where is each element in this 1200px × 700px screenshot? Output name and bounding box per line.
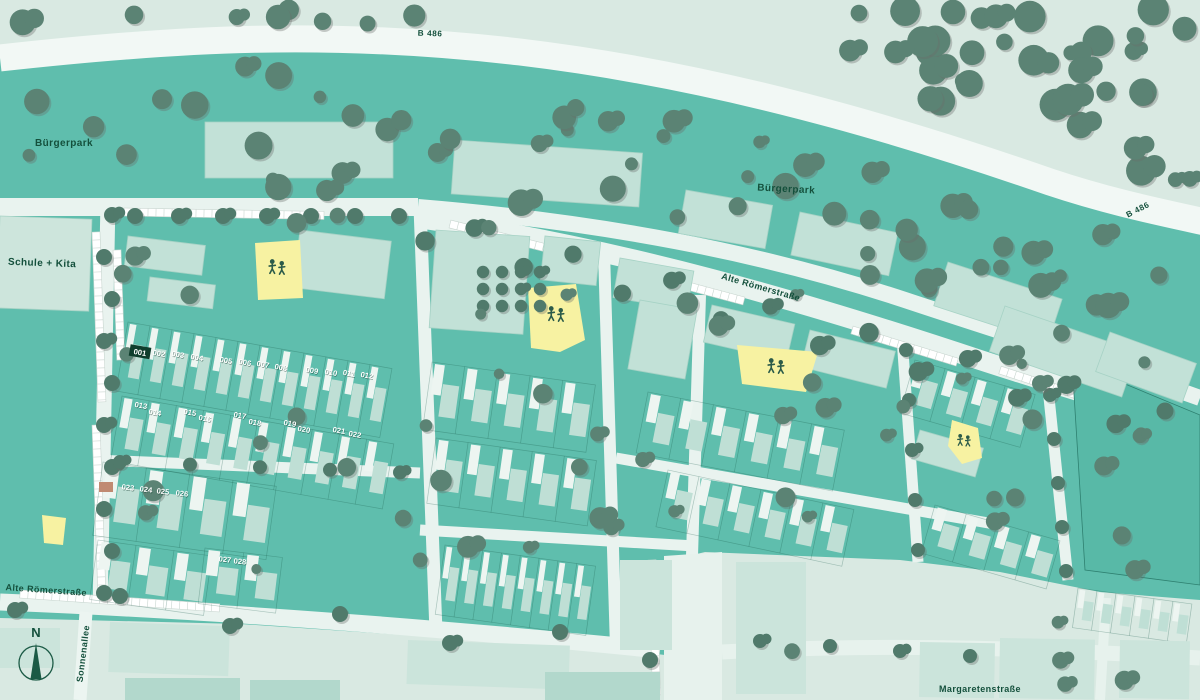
tree-icon bbox=[360, 16, 376, 32]
tree-icon bbox=[1041, 375, 1053, 387]
building bbox=[620, 560, 672, 650]
building bbox=[0, 628, 60, 668]
tree-icon bbox=[104, 543, 120, 559]
tree-icon bbox=[25, 9, 44, 28]
building bbox=[250, 680, 340, 700]
plot-number-label: 027 bbox=[218, 554, 232, 564]
tree-icon bbox=[614, 285, 631, 302]
tree-icon bbox=[929, 268, 947, 286]
tree-icon bbox=[1104, 223, 1120, 239]
tree-icon bbox=[180, 286, 199, 305]
tree-icon bbox=[477, 283, 489, 295]
plot-number-label: 023 bbox=[121, 482, 135, 492]
tree-icon bbox=[1055, 520, 1069, 534]
tree-icon bbox=[253, 435, 268, 450]
tree-icon bbox=[772, 298, 784, 310]
tree-icon bbox=[1131, 84, 1153, 106]
tree-icon bbox=[268, 208, 280, 220]
tree-icon bbox=[127, 208, 143, 224]
tree-icon bbox=[440, 129, 461, 150]
tree-icon bbox=[314, 13, 331, 30]
tree-icon bbox=[899, 343, 913, 357]
tree-icon bbox=[920, 361, 935, 376]
tree-icon bbox=[776, 487, 796, 507]
tree-icon bbox=[901, 644, 912, 655]
tree-icon bbox=[137, 246, 151, 260]
tree-icon bbox=[860, 246, 875, 261]
tree-icon bbox=[105, 417, 117, 429]
tree-icon bbox=[784, 406, 797, 419]
tree-icon bbox=[323, 463, 337, 477]
building bbox=[736, 562, 806, 694]
tree-icon bbox=[1059, 616, 1068, 625]
tree-icon bbox=[1082, 111, 1102, 131]
tree-icon bbox=[1051, 476, 1065, 490]
tree-icon bbox=[496, 266, 508, 278]
tree-icon bbox=[670, 209, 686, 225]
tree-icon bbox=[612, 519, 624, 531]
tree-icon bbox=[1176, 172, 1187, 183]
tree-icon bbox=[420, 419, 433, 432]
tree-icon bbox=[344, 162, 360, 178]
tree-icon bbox=[96, 249, 112, 265]
tree-icon bbox=[105, 333, 117, 345]
tree-icon bbox=[523, 189, 543, 209]
plot-number-028[interactable]: 028028 bbox=[233, 556, 247, 567]
tree-icon bbox=[1143, 155, 1165, 177]
tree-icon bbox=[541, 135, 554, 148]
area-label-buergerpark-west: Bürgerpark bbox=[35, 138, 93, 149]
tree-icon bbox=[642, 652, 658, 668]
tree-icon bbox=[993, 236, 1013, 256]
tree-icon bbox=[996, 34, 1013, 51]
plot-number-027[interactable]: 027027 bbox=[218, 554, 232, 565]
tree-icon bbox=[963, 372, 972, 381]
tree-icon bbox=[265, 174, 291, 200]
tree-icon bbox=[24, 89, 49, 114]
tree-icon bbox=[808, 511, 817, 520]
tree-icon bbox=[247, 56, 262, 71]
tree-icon bbox=[1059, 564, 1073, 578]
tree-icon bbox=[998, 4, 1016, 22]
tree-icon bbox=[1157, 403, 1174, 420]
tree-icon bbox=[1083, 57, 1103, 77]
tree-icon bbox=[496, 300, 508, 312]
tree-icon bbox=[972, 259, 989, 276]
tree-icon bbox=[959, 200, 978, 219]
tree-icon bbox=[183, 458, 197, 472]
tree-icon bbox=[534, 300, 546, 312]
tree-icon bbox=[265, 62, 292, 89]
tree-icon bbox=[16, 602, 28, 614]
tree-icon bbox=[391, 110, 411, 130]
tree-icon bbox=[522, 282, 531, 291]
tree-icon bbox=[807, 153, 825, 171]
tree-icon bbox=[956, 70, 983, 97]
tree-icon bbox=[860, 265, 880, 285]
tree-icon bbox=[1018, 388, 1031, 401]
tree-icon bbox=[729, 197, 747, 215]
tree-icon bbox=[1047, 432, 1061, 446]
plot-number-label: 024 bbox=[139, 484, 153, 495]
tree-icon bbox=[960, 40, 985, 65]
tree-icon bbox=[481, 220, 496, 235]
tree-icon bbox=[180, 208, 192, 220]
tree-icon bbox=[475, 309, 486, 320]
tree-icon bbox=[852, 39, 868, 55]
tree-icon bbox=[23, 149, 36, 162]
tree-icon bbox=[896, 400, 910, 414]
tree-icon bbox=[1141, 428, 1152, 439]
tree-icon bbox=[112, 588, 128, 604]
tree-icon bbox=[1006, 488, 1024, 506]
tree-icon bbox=[1070, 83, 1094, 107]
tree-icon bbox=[822, 202, 846, 226]
tree-icon bbox=[1066, 676, 1078, 688]
tree-icon bbox=[1126, 670, 1140, 684]
tree-icon bbox=[887, 428, 897, 438]
building-accent bbox=[99, 482, 113, 492]
tree-icon bbox=[430, 470, 452, 492]
tree-icon bbox=[571, 459, 588, 476]
plot-number-label: 028 bbox=[233, 556, 247, 566]
tree-icon bbox=[897, 40, 914, 57]
tree-icon bbox=[391, 208, 407, 224]
tree-icon bbox=[1035, 240, 1053, 258]
street-label-margaretenstrasse: Margaretenstraße bbox=[939, 684, 1021, 694]
tree-icon bbox=[1105, 456, 1119, 470]
tree-icon bbox=[245, 132, 273, 160]
tree-icon bbox=[564, 246, 581, 263]
tree-icon bbox=[116, 144, 137, 165]
tree-icon bbox=[266, 5, 291, 30]
street bbox=[664, 552, 722, 700]
tree-icon bbox=[911, 543, 925, 557]
tree-icon bbox=[1096, 82, 1115, 101]
tree-icon bbox=[328, 179, 344, 195]
tree-icon bbox=[181, 91, 209, 119]
compass-north-letter: N bbox=[31, 625, 40, 640]
playground-area[interactable] bbox=[42, 515, 66, 545]
tree-icon bbox=[874, 161, 890, 177]
tree-icon bbox=[1068, 375, 1082, 389]
tree-icon bbox=[741, 170, 754, 183]
tree-icon bbox=[533, 384, 553, 404]
tree-icon bbox=[395, 510, 412, 527]
tree-icon bbox=[224, 208, 236, 220]
tree-icon bbox=[986, 491, 1002, 507]
building bbox=[545, 672, 660, 700]
tree-icon bbox=[827, 397, 842, 412]
tree-icon bbox=[908, 493, 922, 507]
tree-icon bbox=[287, 213, 307, 233]
tree-icon bbox=[784, 643, 800, 659]
tree-icon bbox=[821, 335, 836, 350]
tree-icon bbox=[530, 541, 539, 550]
tree-icon bbox=[113, 207, 125, 219]
tree-icon bbox=[104, 291, 120, 307]
tree-icon bbox=[415, 231, 434, 250]
plot-number-024[interactable]: 024024 bbox=[139, 484, 154, 495]
tree-icon bbox=[83, 116, 104, 137]
tree-icon bbox=[1117, 414, 1131, 428]
tree-icon bbox=[96, 501, 112, 517]
tree-icon bbox=[895, 219, 917, 241]
tree-icon bbox=[125, 6, 144, 25]
tree-icon bbox=[996, 512, 1010, 526]
road-label-b486-west: B 486 bbox=[418, 29, 443, 39]
tree-icon bbox=[413, 552, 428, 567]
tree-icon bbox=[147, 505, 159, 517]
tree-icon bbox=[1043, 272, 1062, 291]
tree-icon bbox=[1137, 136, 1154, 153]
tree-icon bbox=[917, 86, 942, 111]
tree-icon bbox=[567, 99, 584, 116]
tree-icon bbox=[1138, 356, 1150, 368]
tree-icon bbox=[401, 465, 412, 476]
site-plan-canvas: 0010020020030030040040050050060060070070… bbox=[0, 0, 1200, 700]
tree-icon bbox=[403, 4, 425, 26]
tree-icon bbox=[599, 426, 610, 437]
plot-number-026[interactable]: 026026 bbox=[175, 488, 189, 499]
tree-icon bbox=[238, 9, 250, 21]
tree-icon bbox=[1110, 292, 1129, 311]
tree-icon bbox=[1113, 526, 1131, 544]
tree-icon bbox=[104, 375, 120, 391]
tree-icon bbox=[941, 0, 966, 24]
tree-icon bbox=[342, 104, 365, 127]
tree-icon bbox=[522, 265, 531, 274]
tree-icon bbox=[677, 292, 699, 314]
site-plan-map: 0010020020030030040040050050060060070070… bbox=[0, 0, 1200, 700]
tree-icon bbox=[541, 265, 550, 274]
tree-icon bbox=[803, 373, 821, 391]
tree-icon bbox=[644, 452, 655, 463]
tree-icon bbox=[568, 288, 577, 297]
tree-icon bbox=[1038, 52, 1059, 73]
tree-icon bbox=[251, 564, 261, 574]
tree-icon bbox=[552, 624, 568, 640]
tree-icon bbox=[913, 443, 924, 454]
tree-icon bbox=[963, 649, 977, 663]
tree-icon bbox=[337, 458, 356, 477]
plot-number-label: 025 bbox=[156, 486, 170, 497]
tree-icon bbox=[1053, 325, 1070, 342]
tree-icon bbox=[515, 300, 527, 312]
tree-icon bbox=[1127, 27, 1145, 45]
plot-number-025[interactable]: 025025 bbox=[156, 486, 171, 497]
tree-icon bbox=[656, 129, 670, 143]
tree-icon bbox=[534, 283, 546, 295]
tree-icon bbox=[347, 208, 363, 224]
tree-icon bbox=[314, 91, 326, 103]
tree-icon bbox=[1010, 345, 1025, 360]
playground-area[interactable] bbox=[255, 240, 303, 300]
tree-icon bbox=[1051, 388, 1062, 399]
tree-icon bbox=[625, 157, 638, 170]
tree-icon bbox=[114, 265, 132, 283]
plot-number-023[interactable]: 023023 bbox=[121, 482, 135, 493]
tree-icon bbox=[1150, 266, 1167, 283]
tree-icon bbox=[332, 606, 348, 622]
tree-icon bbox=[823, 639, 837, 653]
tree-icon bbox=[477, 266, 489, 278]
tree-icon bbox=[676, 109, 693, 126]
tree-icon bbox=[673, 271, 686, 284]
building bbox=[108, 622, 230, 676]
tree-icon bbox=[761, 634, 772, 645]
tree-icon bbox=[231, 618, 243, 630]
tree-icon bbox=[121, 455, 132, 466]
tree-icon bbox=[860, 210, 880, 230]
plot-number-label: 026 bbox=[175, 488, 189, 498]
tree-icon bbox=[969, 350, 982, 363]
tree-icon bbox=[934, 54, 958, 78]
tree-icon bbox=[451, 635, 463, 647]
tree-icon bbox=[859, 323, 878, 342]
tree-icon bbox=[1173, 17, 1197, 41]
tree-icon bbox=[152, 89, 172, 109]
tree-icon bbox=[330, 208, 346, 224]
tree-icon bbox=[610, 110, 625, 125]
tree-icon bbox=[993, 260, 1009, 276]
tree-icon bbox=[600, 176, 626, 202]
tree-icon bbox=[1014, 1, 1046, 33]
tree-icon bbox=[1022, 409, 1042, 429]
building bbox=[125, 678, 240, 700]
tree-icon bbox=[96, 585, 112, 601]
tree-icon bbox=[760, 135, 769, 144]
tree-icon bbox=[253, 460, 267, 474]
tree-icon bbox=[470, 535, 486, 551]
tree-icon bbox=[494, 369, 505, 380]
tree-icon bbox=[675, 505, 684, 514]
building bbox=[205, 122, 393, 178]
tree-icon bbox=[1062, 652, 1075, 665]
tree-icon bbox=[1136, 560, 1150, 574]
building bbox=[293, 230, 391, 299]
tree-icon bbox=[851, 5, 868, 22]
tree-icon bbox=[496, 283, 508, 295]
tree-icon bbox=[720, 315, 735, 330]
